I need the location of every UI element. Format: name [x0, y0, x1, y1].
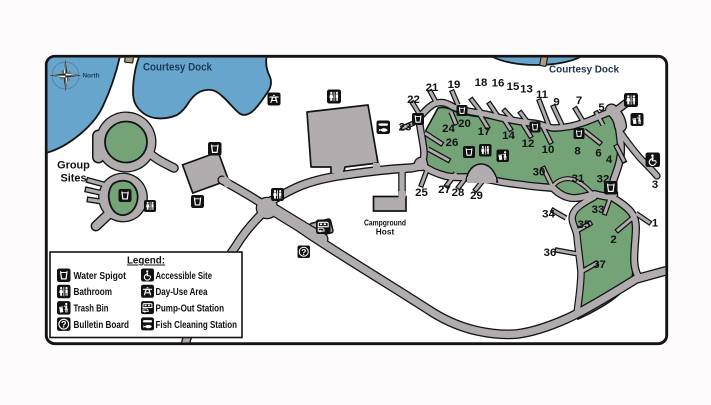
svg-text:17: 17	[478, 126, 491, 138]
svg-text:25: 25	[415, 187, 428, 199]
svg-text:5: 5	[598, 102, 605, 114]
svg-text:24: 24	[442, 123, 455, 135]
svg-text:28: 28	[452, 187, 465, 199]
svg-text:Group: Group	[57, 160, 90, 172]
svg-text:9: 9	[553, 96, 559, 108]
svg-text:Fish Cleaning Station: Fish Cleaning Station	[156, 320, 238, 331]
svg-text:31: 31	[572, 173, 585, 185]
svg-text:Trash Bin: Trash Bin	[74, 304, 109, 315]
svg-text:Legend:: Legend:	[127, 256, 165, 267]
svg-text:Courtesy Dock: Courtesy Dock	[143, 62, 213, 74]
svg-text:Bulletin Board: Bulletin Board	[74, 320, 130, 331]
svg-text:18: 18	[475, 77, 488, 89]
svg-text:27: 27	[438, 184, 451, 196]
svg-text:13: 13	[520, 83, 533, 95]
svg-text:Water Spigot: Water Spigot	[74, 271, 127, 282]
svg-text:4: 4	[606, 154, 613, 166]
svg-text:34: 34	[542, 208, 555, 220]
svg-text:30: 30	[533, 166, 546, 178]
svg-text:Accessible Site: Accessible Site	[156, 271, 213, 282]
svg-text:21: 21	[426, 82, 439, 94]
svg-text:2: 2	[610, 234, 616, 246]
svg-text:29: 29	[470, 190, 483, 202]
svg-text:16: 16	[492, 77, 505, 89]
svg-text:Bathroom: Bathroom	[74, 287, 113, 298]
svg-text:7: 7	[576, 95, 582, 107]
svg-text:3: 3	[652, 179, 658, 191]
svg-text:33: 33	[592, 204, 605, 216]
svg-text:15: 15	[507, 81, 520, 93]
svg-text:Pump-Out Station: Pump-Out Station	[156, 304, 225, 315]
svg-text:Day-Use Area: Day-Use Area	[156, 287, 208, 298]
svg-text:Courtesy Dock: Courtesy Dock	[549, 65, 619, 76]
svg-text:20: 20	[458, 118, 471, 130]
svg-text:8: 8	[574, 145, 580, 157]
svg-text:36: 36	[544, 247, 557, 259]
svg-text:North: North	[82, 73, 99, 80]
svg-text:37: 37	[593, 259, 606, 271]
svg-text:35: 35	[578, 219, 591, 231]
svg-text:Sites: Sites	[60, 173, 86, 185]
svg-text:12: 12	[522, 138, 535, 150]
svg-text:Host: Host	[376, 227, 395, 237]
svg-text:10: 10	[542, 144, 555, 156]
svg-text:11: 11	[536, 89, 549, 101]
svg-text:26: 26	[446, 137, 459, 149]
svg-text:14: 14	[502, 130, 515, 142]
svg-text:19: 19	[448, 79, 461, 91]
svg-text:22: 22	[407, 94, 420, 106]
svg-text:1: 1	[652, 217, 659, 229]
svg-text:6: 6	[595, 147, 601, 159]
svg-text:23: 23	[399, 121, 412, 133]
